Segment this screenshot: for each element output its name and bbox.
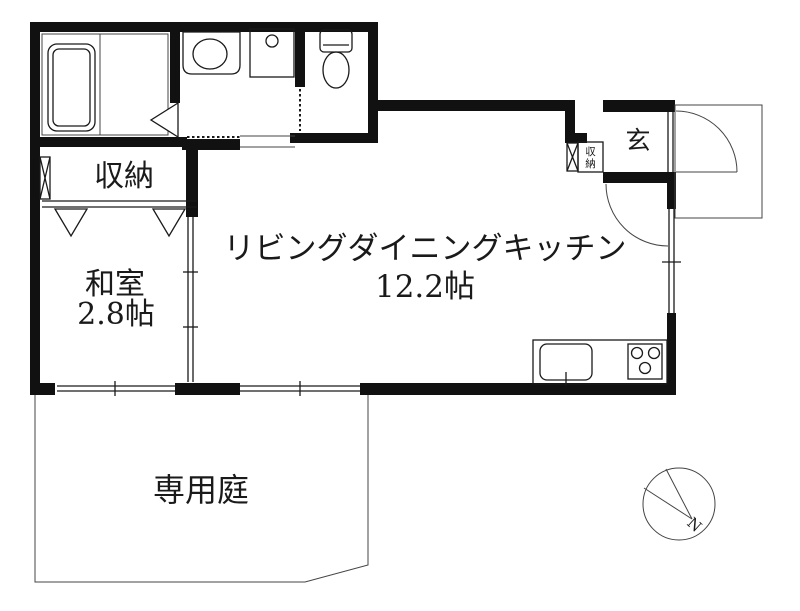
entrance-label: 玄 [625,126,650,155]
wall-entrance-bottom [603,172,676,183]
ldk-name: リビングダイニングキッチン [224,231,627,267]
japanese-room-size: 2.8帖 [77,297,155,332]
wall-left [30,22,40,395]
bathtub-inner [53,49,90,126]
wall-entrance-top [603,100,675,112]
walls [30,22,676,395]
porch-outline [675,105,762,218]
wall-bottom-a [30,383,55,395]
wall-right-lower [667,313,676,393]
stove-burner-3 [640,363,651,374]
wall-block-right [368,22,378,143]
toilet-bowl-icon [323,52,349,88]
wall-bottom-b [175,383,240,395]
washbasin-counter [183,32,240,74]
wall-washroom-toilet [295,32,305,87]
washer-pan-outline [250,29,294,77]
kitchen-counter [533,340,667,384]
ldk-room: リビングダイニングキッチン 12.2帖 [224,231,668,386]
compass-circle [643,468,715,540]
compass-needle-line2 [644,488,692,519]
window-east [662,209,681,313]
wall-bath-bottom [30,137,187,147]
window-right [240,381,360,396]
floor-plan-canvas: 収納 和室 2.8帖 リビングダイニングキッチン 1 [0,0,800,611]
floor-plan-drawing: 収納 和室 2.8帖 リビングダイニングキッチン 1 [0,0,800,611]
garden-label: 専用庭 [153,471,249,509]
bathroom-door-icon [151,103,178,137]
bathroom [42,34,178,137]
compass-needle-line1 [666,469,692,519]
private-garden: 専用庭 [35,395,368,582]
entrance-closet: 収 納 [567,142,603,172]
compass: N [643,468,715,540]
wall-toilet-bottom [290,133,378,143]
toilet-room [300,30,352,131]
washbasin-bowl-icon [193,39,227,69]
japanese-room: 和室 2.8帖 [77,217,198,382]
stove-icon [628,344,662,379]
washroom [183,29,295,147]
sliding-door-partition [183,217,198,382]
wall-bath-washroom [170,32,180,103]
toilet [320,30,352,88]
front-door-swing-arc [676,111,737,172]
ldk-size: 12.2帖 [375,269,475,305]
front-door [668,105,762,218]
closet-door-triangle-left [55,209,87,236]
bathtub [48,44,95,131]
wall-ldk-top [368,100,565,111]
closet-door-triangle-right [153,209,185,236]
bathtub-outer [48,44,95,131]
pipe-space-hatch [40,157,50,199]
wall-bottom-c [360,383,676,395]
stove-burner-1 [632,348,643,359]
window-left [57,381,175,396]
storage-room: 収納 [40,157,197,236]
washing-machine-pan [250,29,294,77]
kitchen-unit [533,340,667,386]
entrance-storage-char2: 納 [585,157,596,170]
toilet-tank [320,30,352,52]
entrance-storage-char1: 収 [585,146,596,158]
compass-north-label: N [683,514,705,536]
washer-drain-icon [266,35,278,47]
storage-label: 収納 [94,159,154,194]
stove-burner-2 [649,348,660,359]
